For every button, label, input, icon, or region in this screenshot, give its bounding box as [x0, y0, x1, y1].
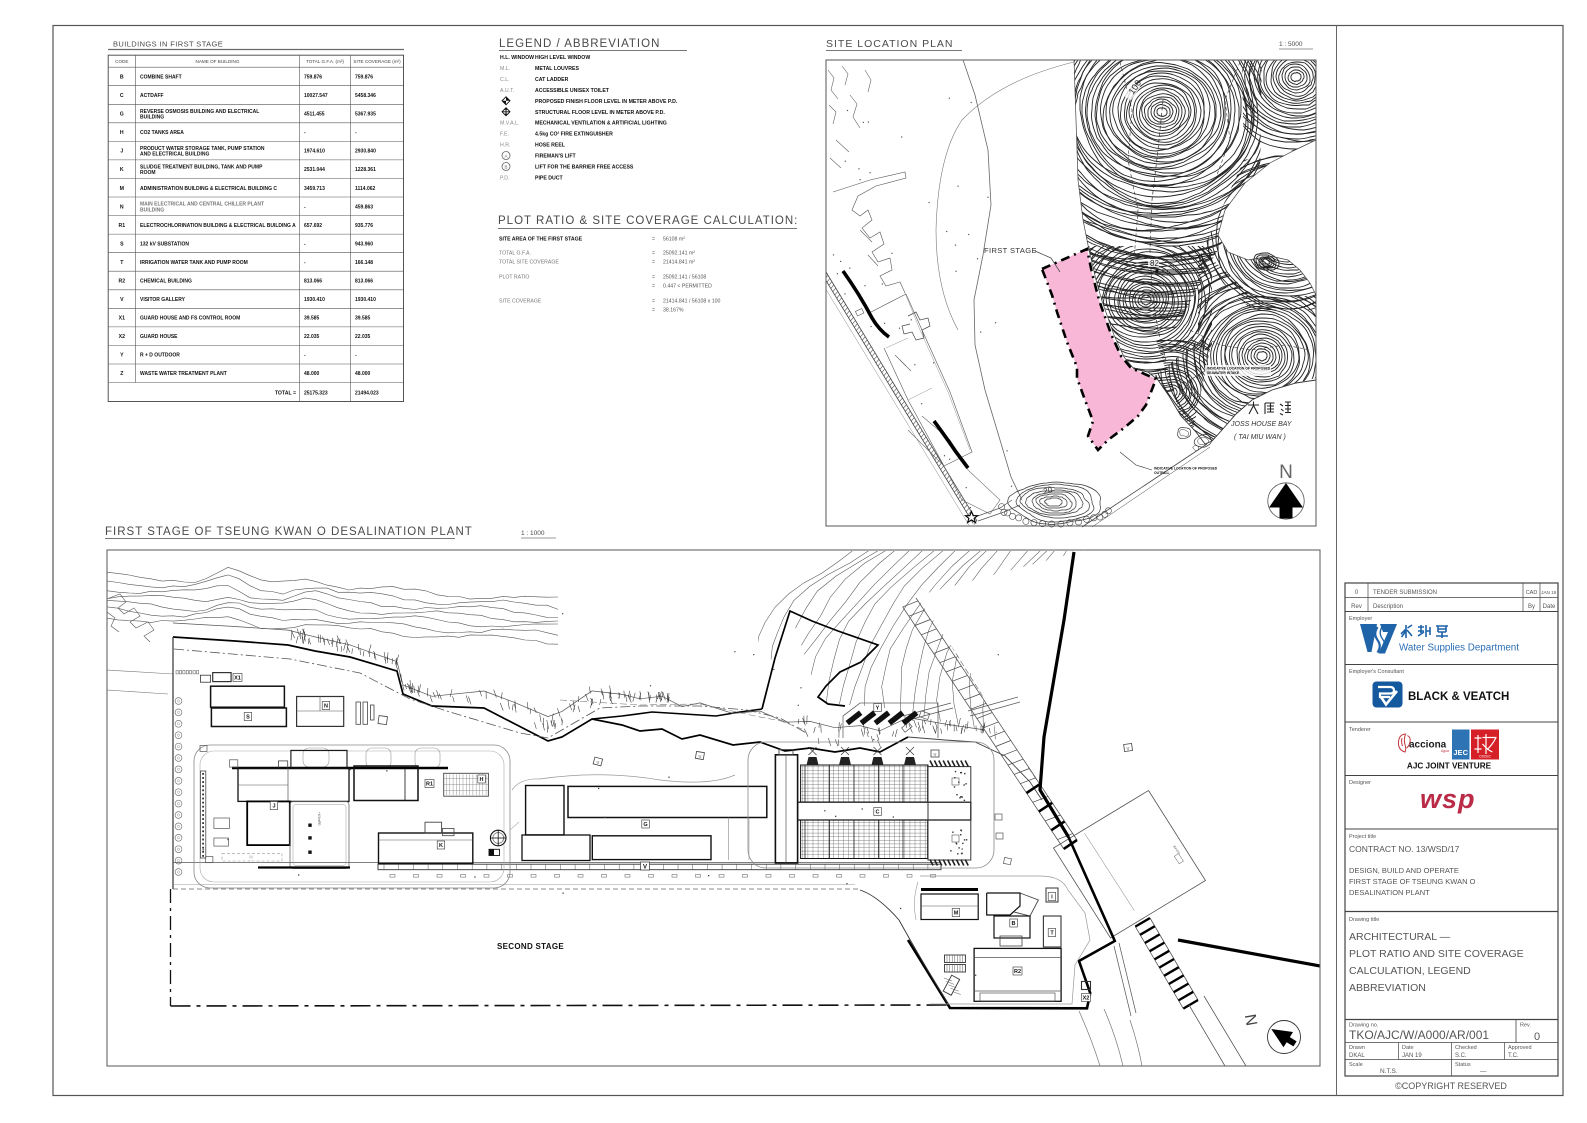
svg-text:J: J — [272, 804, 275, 810]
svg-text:ABBREVIATION: ABBREVIATION — [1349, 982, 1426, 994]
svg-text:Employer: Employer — [1349, 616, 1372, 622]
svg-text:JEC: JEC — [1453, 748, 1468, 757]
svg-text:NAME OF BUILDING: NAME OF BUILDING — [196, 59, 240, 64]
svg-text:657.692: 657.692 — [304, 223, 322, 229]
svg-text:N.T.S.: N.T.S. — [1380, 1068, 1398, 1075]
svg-text:R + D OUTDOOR: R + D OUTDOOR — [140, 353, 180, 359]
svg-text:TOTAL G.F.A. (m²): TOTAL G.F.A. (m²) — [306, 59, 344, 64]
svg-text:S: S — [120, 241, 124, 247]
svg-text:B: B — [504, 165, 507, 170]
svg-text:X1: X1 — [234, 676, 241, 682]
svg-text:Checked: Checked — [1455, 1045, 1477, 1051]
svg-text:M: M — [120, 186, 124, 192]
svg-text:10027.547: 10027.547 — [304, 93, 328, 99]
svg-text:GUARD HOUSE AND FS CONTROL ROO: GUARD HOUSE AND FS CONTROL ROOM — [140, 316, 240, 322]
svg-text:X2: X2 — [119, 334, 125, 340]
svg-text:DESIGN, BUILD AND OPERATE: DESIGN, BUILD AND OPERATE — [1349, 866, 1459, 875]
svg-text:CAT LADDER: CAT LADDER — [535, 77, 569, 83]
svg-text:813.066: 813.066 — [355, 279, 373, 285]
svg-text:A: A — [504, 154, 507, 159]
svg-text:ACTDAFF: ACTDAFF — [140, 93, 164, 99]
svg-text:BUILDING: BUILDING — [140, 115, 164, 121]
svg-text:JAN 19: JAN 19 — [1541, 590, 1557, 595]
svg-text:Tenderer: Tenderer — [1349, 727, 1371, 733]
svg-text:=: = — [652, 308, 655, 314]
svg-text:5458.346: 5458.346 — [355, 93, 376, 99]
svg-text:R2: R2 — [1014, 969, 1021, 975]
svg-text:0.447 < PERMITTED: 0.447 < PERMITTED — [663, 284, 712, 290]
svg-text:Date: Date — [1402, 1045, 1414, 1051]
svg-text:21414.841 m²: 21414.841 m² — [663, 260, 695, 266]
svg-text:AJC JOINT VENTURE: AJC JOINT VENTURE — [1407, 762, 1492, 771]
svg-text:OUTFALL: OUTFALL — [1154, 471, 1170, 475]
svg-text:IRRIGATION WATER TANK AND PUMP: IRRIGATION WATER TANK AND PUMP ROOM — [140, 260, 248, 266]
svg-text:( TAI MIU WAN ): ( TAI MIU WAN ) — [1234, 434, 1286, 441]
svg-text:1930.410: 1930.410 — [355, 297, 376, 303]
svg-text:V: V — [643, 864, 647, 870]
svg-text:M: M — [954, 911, 959, 917]
svg-text:J: J — [120, 149, 123, 155]
svg-text:AND ELECTRICAL BUILDING: AND ELECTRICAL BUILDING — [140, 152, 209, 158]
svg-text:1974.610: 1974.610 — [304, 149, 325, 155]
svg-text:wsp: wsp — [1420, 784, 1476, 814]
svg-text:SECOND STAGE: SECOND STAGE — [497, 942, 564, 951]
svg-text:+6.5mPD: +6.5mPD — [317, 812, 321, 826]
svg-text:MECHANICAL VENTILATION & ARTIF: MECHANICAL VENTILATION & ARTIFICIAL LIGH… — [535, 121, 667, 127]
svg-text:166.148: 166.148 — [355, 260, 373, 266]
svg-text:=: = — [652, 237, 655, 243]
svg-text:BUILDINGS IN FIRST STAGE: BUILDINGS IN FIRST STAGE — [113, 40, 223, 49]
svg-text:B: B — [1012, 921, 1016, 927]
svg-text:CONTRACT NO. 13/WSD/17: CONTRACT NO. 13/WSD/17 — [1349, 844, 1460, 854]
svg-text:48.000: 48.000 — [304, 371, 320, 377]
svg-text:2531.044: 2531.044 — [304, 167, 325, 173]
svg-text:H: H — [480, 777, 484, 783]
svg-text:1 : 1000: 1 : 1000 — [521, 530, 545, 537]
svg-text:Approved: Approved — [1508, 1045, 1532, 1051]
svg-text:S.C.: S.C. — [1455, 1053, 1467, 1059]
svg-text:459.863: 459.863 — [355, 204, 373, 210]
svg-text:JOSS HOUSE BAY: JOSS HOUSE BAY — [1230, 421, 1293, 428]
svg-text:CSCEC: CSCEC — [1479, 755, 1491, 759]
svg-text:BLACK & VEATCH: BLACK & VEATCH — [1408, 691, 1509, 703]
svg-text:Scale: Scale — [1349, 1062, 1363, 1068]
svg-text:ACCESSIBLE UNISEX TOILET: ACCESSIBLE UNISEX TOILET — [535, 88, 610, 94]
svg-text:SITE LOCATION PLAN: SITE LOCATION PLAN — [826, 38, 954, 50]
svg-text:0: 0 — [1534, 1031, 1540, 1043]
svg-text:Designer: Designer — [1349, 780, 1371, 786]
svg-text:B: B — [120, 75, 124, 81]
svg-text:CAD: CAD — [1526, 590, 1538, 596]
svg-text:R1: R1 — [426, 782, 433, 788]
svg-text:759.876: 759.876 — [355, 75, 373, 81]
svg-text:PROPOSED FINISH FLOOR LEVEL IN: PROPOSED FINISH FLOOR LEVEL IN METER ABO… — [535, 99, 678, 105]
svg-text:SITE COVERAGE (m²): SITE COVERAGE (m²) — [353, 59, 401, 64]
svg-text:2930.840: 2930.840 — [355, 149, 376, 155]
svg-text:25092.141 / 56108: 25092.141 / 56108 — [663, 275, 706, 281]
svg-text:K: K — [120, 167, 124, 173]
svg-text:PLOT RATIO & SITE COVERAGE: PLOT RATIO & SITE COVERAGE CALCULATION: — [498, 215, 798, 227]
svg-text:INDICATIVE LOCATION OF PROPOSE: INDICATIVE LOCATION OF PROPOSED — [1207, 367, 1271, 371]
svg-text:Y: Y — [876, 706, 880, 712]
svg-text:22.035: 22.035 — [304, 334, 320, 340]
svg-text:25092.141 m²: 25092.141 m² — [663, 251, 695, 257]
svg-text:PIPE DUCT: PIPE DUCT — [535, 175, 564, 181]
svg-text:4.5kg CO² FIRE EXTINGUISHER: 4.5kg CO² FIRE EXTINGUISHER — [535, 132, 613, 138]
svg-text:COMBINE SHAFT: COMBINE SHAFT — [140, 75, 182, 81]
svg-text:813.066: 813.066 — [304, 279, 322, 285]
svg-text:22.035: 22.035 — [355, 334, 371, 340]
svg-text:P.D.: P.D. — [500, 175, 509, 181]
svg-text:R1: R1 — [118, 223, 125, 229]
svg-text:56108 m²: 56108 m² — [663, 237, 685, 243]
svg-text:759.876: 759.876 — [304, 75, 322, 81]
svg-text:C: C — [876, 810, 880, 816]
svg-text:FIRST STAGE OF TSEUNG KWAN O: FIRST STAGE OF TSEUNG KWAN O — [1349, 877, 1476, 886]
svg-text:Rev: Rev — [1351, 604, 1362, 610]
svg-text:By: By — [1528, 604, 1535, 610]
svg-text:R2: R2 — [118, 279, 125, 285]
svg-text:M.L.: M.L. — [500, 66, 510, 72]
svg-text:X1: X1 — [119, 316, 125, 322]
svg-text:A.U.T.: A.U.T. — [500, 88, 514, 94]
svg-text:—: — — [1480, 1068, 1487, 1075]
svg-text:=: = — [652, 275, 655, 281]
svg-text:38.167%: 38.167% — [663, 308, 684, 314]
svg-text:DESALINATION PLANT: DESALINATION PLANT — [1349, 888, 1430, 897]
svg-text:39.585: 39.585 — [355, 316, 371, 322]
svg-text:U: U — [597, 760, 600, 765]
svg-text:K: K — [439, 843, 443, 849]
svg-text:DKAL: DKAL — [1349, 1053, 1365, 1059]
svg-text:CALCULATION, LEGEND: CALCULATION, LEGEND — [1349, 965, 1471, 977]
svg-text:1228.361: 1228.361 — [355, 167, 376, 173]
svg-text:FIRST STAGE OF TSEUNG KWAN: FIRST STAGE OF TSEUNG KWAN O DESALINATIO… — [105, 526, 473, 538]
svg-text:C: C — [120, 93, 124, 99]
svg-text:Rev.: Rev. — [1520, 1023, 1531, 1029]
svg-text:U: U — [1127, 746, 1130, 751]
svg-text:=: = — [652, 260, 655, 266]
svg-text:1114.062: 1114.062 — [355, 186, 376, 192]
svg-text:5367.935: 5367.935 — [355, 112, 376, 118]
svg-text:N: N — [120, 204, 124, 210]
svg-text:FIREMAN'S LIFT: FIREMAN'S LIFT — [535, 154, 577, 160]
svg-text:TOTAL G.F.A.: TOTAL G.F.A. — [499, 251, 531, 257]
svg-text:SITE AREA OF THE FIRST STAGE: SITE AREA OF THE FIRST STAGE — [499, 237, 583, 243]
svg-text:HIGH LEVEL WINDOW: HIGH LEVEL WINDOW — [535, 55, 590, 61]
svg-text:V: V — [120, 297, 124, 303]
svg-text:39.585: 39.585 — [304, 316, 320, 322]
svg-text:Agua: Agua — [1441, 749, 1449, 753]
svg-text:U: U — [934, 752, 937, 757]
svg-text:ELECTROCHLORINATION BUILDING &: ELECTROCHLORINATION BUILDING & ELECTRICA… — [140, 223, 296, 229]
svg-text:21414.841 / 56108 x 100: 21414.841 / 56108 x 100 — [663, 299, 721, 305]
svg-text:Status: Status — [1455, 1062, 1471, 1068]
svg-text:STRUCTURAL FLOOR LEVEL IN METE: STRUCTURAL FLOOR LEVEL IN METER ABOVE P.… — [535, 110, 665, 116]
svg-text:3459.713: 3459.713 — [304, 186, 325, 192]
svg-text:JAN 19: JAN 19 — [1402, 1053, 1422, 1059]
svg-text:F.E.: F.E. — [500, 132, 509, 138]
svg-text:=: = — [652, 251, 655, 257]
svg-text:Water Supplies Department: Water Supplies Department — [1399, 643, 1519, 654]
svg-text:T.C.: T.C. — [1508, 1053, 1519, 1059]
svg-text:4511.455: 4511.455 — [304, 112, 325, 118]
svg-text:H.L. WINDOW: H.L. WINDOW — [500, 55, 534, 61]
svg-text:21494.023: 21494.023 — [355, 391, 379, 397]
svg-text:HOSE REEL: HOSE REEL — [535, 143, 566, 149]
svg-text:TENDER SUBMISSION: TENDER SUBMISSION — [1373, 590, 1437, 596]
svg-text:Description: Description — [1373, 604, 1403, 610]
svg-text:G: G — [120, 112, 124, 118]
svg-text:PLOT RATIO: PLOT RATIO — [499, 275, 529, 281]
svg-text:CO2 TANKS AREA: CO2 TANKS AREA — [140, 130, 184, 136]
svg-text:TOTAL SITE COVERAGE: TOTAL SITE COVERAGE — [499, 260, 559, 266]
svg-text:=: = — [652, 284, 655, 290]
svg-text:TKO/AJC/W/A000/AR/001: TKO/AJC/W/A000/AR/001 — [1349, 1028, 1489, 1042]
svg-text:935.776: 935.776 — [355, 223, 373, 229]
svg-text:1 : 5000: 1 : 5000 — [1279, 41, 1303, 48]
svg-text:H: H — [120, 130, 124, 136]
svg-text:G: G — [643, 822, 647, 828]
svg-text:Y: Y — [120, 353, 124, 359]
svg-text:PLOT RATIO AND SITE COVERA: PLOT RATIO AND SITE COVERAGE — [1349, 948, 1524, 960]
svg-text:METAL LOUVRES: METAL LOUVRES — [535, 66, 579, 72]
svg-text:ROOM: ROOM — [140, 170, 156, 176]
svg-text:LEGEND / ABBREVIATION: LEGEND / ABBREVIATION — [499, 38, 660, 50]
svg-text:X2: X2 — [1083, 996, 1090, 1002]
svg-text:=: = — [652, 299, 655, 305]
svg-text:48.000: 48.000 — [355, 371, 371, 377]
svg-text:943.960: 943.960 — [355, 241, 373, 247]
svg-text:N: N — [1279, 462, 1293, 483]
svg-text:WASTE WATER TREATMENT PLANT: WASTE WATER TREATMENT PLANT — [140, 371, 227, 377]
svg-text:GUARD HOUSE: GUARD HOUSE — [140, 334, 178, 340]
svg-text:INDICATIVE LOCATION OF PROPOSE: INDICATIVE LOCATION OF PROPOSED — [1154, 467, 1218, 471]
svg-text:25175.323: 25175.323 — [304, 391, 328, 397]
svg-text:©COPYRIGHT RESERVED: ©COPYRIGHT RESERVED — [1395, 1081, 1507, 1091]
svg-text:BUILDING: BUILDING — [140, 207, 164, 213]
svg-text:N: N — [324, 704, 328, 710]
svg-text:Project title: Project title — [1349, 834, 1376, 840]
svg-text:Employer's Consultant: Employer's Consultant — [1349, 669, 1404, 675]
svg-text:Drawing title: Drawing title — [1349, 917, 1379, 923]
svg-text:82: 82 — [1150, 259, 1159, 268]
svg-text:C.L.: C.L. — [500, 77, 510, 83]
svg-text:U: U — [699, 754, 702, 759]
svg-text:LIFT FOR THE BARRIER FREE ACCE: LIFT FOR THE BARRIER FREE ACCESS — [535, 165, 634, 171]
svg-text:S: S — [246, 715, 250, 721]
svg-text:132 kV SUBSTATION: 132 kV SUBSTATION — [140, 241, 189, 247]
svg-text:ARCHITECTURAL —: ARCHITECTURAL — — [1349, 931, 1451, 943]
svg-text:H.R.: H.R. — [500, 143, 510, 149]
svg-text:CHEMICAL BUILDING: CHEMICAL BUILDING — [140, 279, 192, 285]
svg-text:Drawn: Drawn — [1349, 1045, 1365, 1051]
svg-text:SLUDGE TREATMENT BUILDING, TAN: SLUDGE TREATMENT BUILDING, TANK AND PUMP — [140, 164, 263, 170]
svg-text:SEAWATER INTAKE: SEAWATER INTAKE — [1207, 371, 1240, 375]
svg-text:TOTAL =: TOTAL = — [275, 391, 296, 397]
svg-text:CODE: CODE — [115, 59, 128, 64]
svg-text:SITE COVERAGE: SITE COVERAGE — [499, 299, 542, 305]
svg-text:ADMINISTRATION BUILDING & ELEC: ADMINISTRATION BUILDING & ELECTRICAL BUI… — [140, 186, 277, 192]
svg-text:Date: Date — [1543, 604, 1556, 610]
svg-text:M.V.A.L.: M.V.A.L. — [500, 121, 519, 127]
svg-text:1930.410: 1930.410 — [304, 297, 325, 303]
svg-text:FIRST STAGE: FIRST STAGE — [984, 246, 1037, 255]
svg-text:VISITOR GALLERY: VISITOR GALLERY — [140, 297, 186, 303]
